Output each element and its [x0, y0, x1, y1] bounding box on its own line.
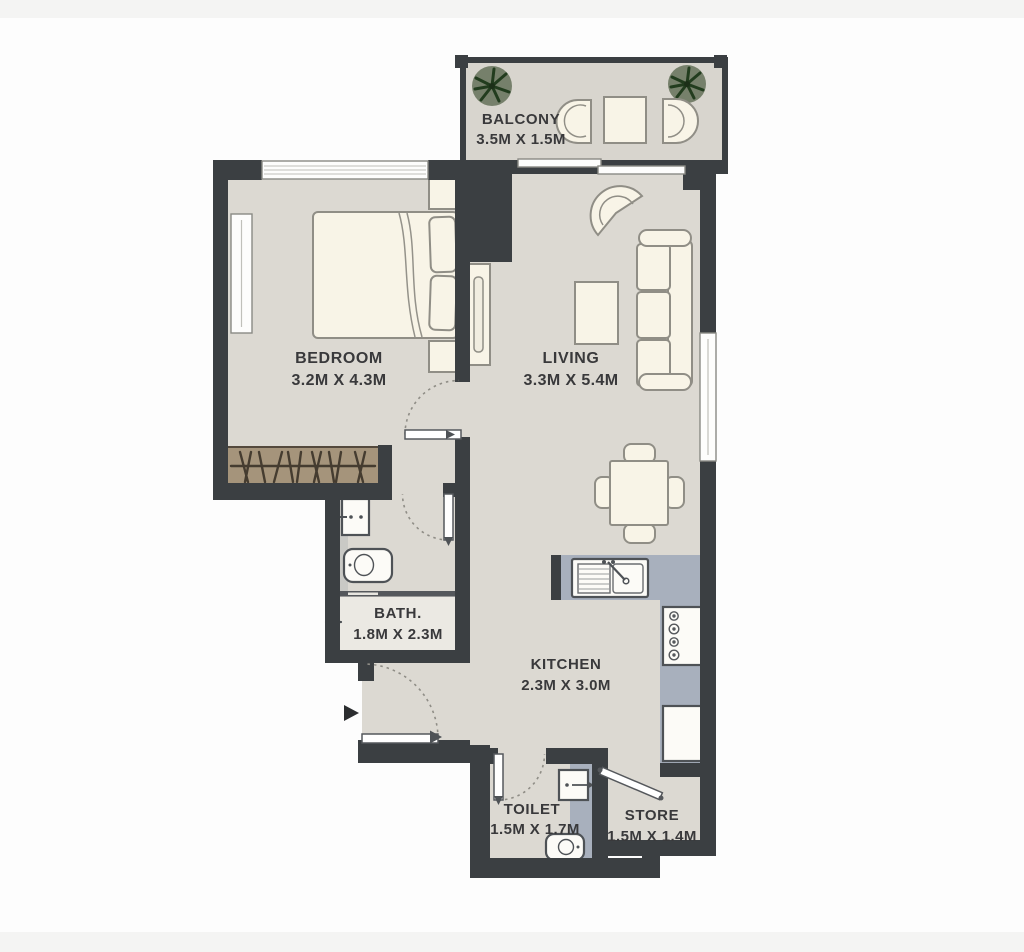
bath-label: BATH. — [374, 605, 422, 622]
bath-sink-dot — [359, 515, 363, 519]
store-door-hinge — [659, 796, 664, 801]
pillow — [429, 276, 457, 331]
plant-icon — [472, 66, 512, 106]
balcony-label: BALCONY — [482, 111, 560, 128]
balcony-post — [714, 55, 727, 68]
wall-segment — [642, 840, 660, 876]
kitchen-label: KITCHEN — [531, 656, 602, 673]
wall-segment — [455, 174, 470, 382]
balcony-slider-panel — [598, 166, 685, 174]
wall-segment — [325, 650, 470, 663]
bedroom-dims: 3.2M X 4.3M — [291, 372, 386, 389]
balcony-post — [455, 55, 468, 68]
refrigerator — [663, 706, 703, 761]
balcony-slider-panel — [518, 159, 601, 167]
coffee-table — [575, 282, 618, 344]
living-dims: 3.3M X 5.4M — [523, 372, 618, 389]
wall-segment — [325, 483, 340, 663]
toilet-sink-dot — [565, 783, 569, 787]
store-door-hinge — [598, 768, 603, 773]
living-label: LIVING — [543, 350, 600, 367]
wall-segment — [700, 461, 716, 763]
toilet-door — [494, 754, 503, 800]
dining-table — [610, 461, 668, 525]
wall-segment — [700, 160, 716, 333]
tv — [474, 277, 483, 352]
entrance-arrow-icon — [344, 705, 359, 721]
bath-dims: 1.8M X 2.3M — [353, 626, 442, 643]
balcony-table — [604, 97, 646, 143]
bath-wc-flush — [349, 564, 352, 567]
sofa-back — [668, 240, 692, 387]
kitchen-dims: 2.3M X 3.0M — [521, 677, 610, 694]
wall-segment — [213, 160, 228, 500]
sofa-armrest — [639, 374, 691, 390]
dining-chair — [624, 524, 655, 543]
pillow — [429, 217, 457, 273]
toilet-label: TOILET — [504, 801, 561, 818]
wall-segment — [660, 763, 705, 777]
nightstand — [429, 179, 458, 209]
bedroom-label: BEDROOM — [295, 350, 383, 367]
entrance-door — [362, 734, 438, 743]
wall-segment — [455, 437, 470, 652]
counter-end-panel — [551, 555, 561, 600]
floor-plan-page: BALCONY 3.5M X 1.5M BEDROOM 3.2M X 4.3M … — [0, 0, 1024, 952]
bath-sink-dot — [349, 515, 353, 519]
sofa-seat — [637, 244, 670, 290]
balcony-rail — [460, 57, 466, 161]
bath-door — [444, 494, 453, 540]
wardrobe — [227, 447, 379, 485]
sink-tap — [602, 560, 606, 564]
toilet-wc-flush — [577, 846, 580, 849]
wall-segment — [358, 653, 374, 681]
wall-segment — [325, 483, 392, 497]
toilet-dims: 1.5M X 1.7M — [490, 821, 579, 838]
floor-plan-drawing: BALCONY 3.5M X 1.5M BEDROOM 3.2M X 4.3M … — [0, 0, 1024, 952]
shower-screen-gap — [348, 593, 378, 596]
sofa-armrest — [639, 230, 691, 246]
wall-segment — [465, 160, 512, 262]
wall-segment — [470, 858, 660, 878]
balcony-rail — [460, 57, 728, 63]
sofa-seat — [637, 292, 670, 338]
balcony-dims: 3.5M X 1.5M — [476, 131, 565, 148]
plant-icon — [668, 65, 706, 103]
store-dims: 1.5M X 1.4M — [607, 828, 696, 845]
nightstand — [429, 341, 458, 372]
store-label: STORE — [625, 807, 679, 824]
balcony-rail — [722, 57, 728, 161]
sink-tap — [611, 560, 615, 564]
hall-floor — [362, 663, 470, 745]
